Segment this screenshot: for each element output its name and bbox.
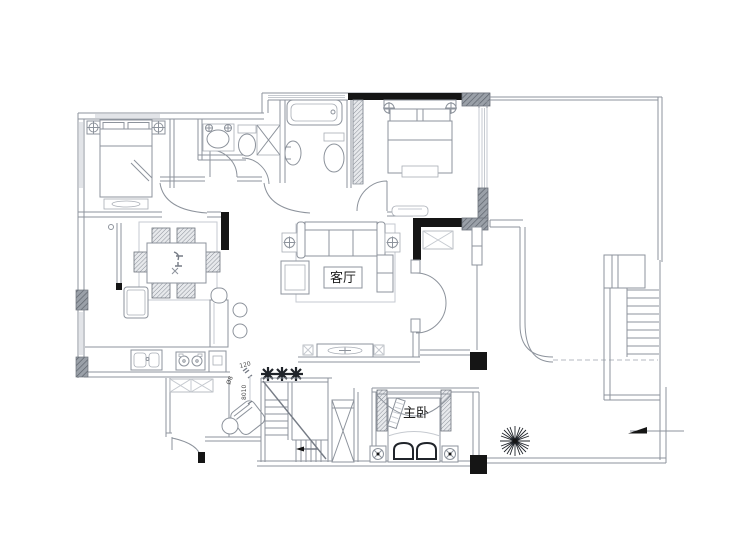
- pillow: [417, 443, 436, 459]
- stair-direction-arrow: [296, 447, 318, 452]
- column-black-1: [470, 352, 487, 370]
- outdoor-staircase: [604, 255, 660, 400]
- sink-basin: [207, 130, 229, 148]
- tv-cabinet: [317, 344, 373, 357]
- sofa-seat: [353, 230, 377, 256]
- speaker: [303, 345, 313, 355]
- dim-text: Ø8: [225, 375, 235, 386]
- bar-stool: [233, 324, 247, 338]
- kitchen-sink: [131, 350, 162, 370]
- living-room: 客厅: [281, 222, 453, 357]
- side-cabinet: [377, 255, 393, 292]
- peninsula-counter: [210, 288, 228, 347]
- sofa-seat: [305, 230, 329, 256]
- nightstand-fan: [442, 446, 458, 462]
- wall-pier: [221, 212, 229, 250]
- master-bedroom-label: 主卧: [403, 406, 429, 421]
- ac-platform: [170, 379, 213, 392]
- stove: [176, 352, 205, 370]
- powder-room: [203, 124, 280, 156]
- dim-text: 8010: [241, 385, 248, 400]
- entry-direction-arrow: [628, 427, 684, 434]
- plant-icons: [261, 367, 303, 381]
- entry-vestibule: 120 Ø8 8010: [222, 360, 303, 437]
- bed: [388, 121, 452, 173]
- sofa-arm: [377, 222, 385, 258]
- coffee-table-label: 客厅: [324, 267, 362, 288]
- bench: [402, 166, 438, 177]
- radiator-block: [76, 357, 88, 377]
- counter-appliance: [209, 351, 226, 372]
- speaker: [374, 345, 384, 355]
- sofa-seat: [329, 230, 353, 256]
- floor-plan-drawing: 客厅: [0, 0, 740, 555]
- big-plant-icon: [500, 426, 530, 456]
- dresser: [392, 206, 428, 216]
- pillow: [423, 109, 450, 121]
- column-black-2: [470, 455, 487, 474]
- pillow: [394, 443, 413, 459]
- ac-cabinet: [423, 231, 453, 249]
- fridge: [124, 287, 148, 318]
- master-bedroom: 主卧: [370, 390, 458, 462]
- dining-table: [147, 243, 206, 283]
- faucet-icon: [224, 124, 232, 132]
- corner-column: [462, 93, 490, 106]
- floor-plan: 客厅: [0, 0, 740, 555]
- shower: [257, 125, 280, 155]
- dining-chair: [206, 252, 220, 272]
- dining-chair: [177, 283, 195, 298]
- dining-chair: [177, 228, 195, 243]
- toilet: [238, 125, 256, 156]
- sofa-arm: [297, 222, 305, 258]
- pedestal-sink: [285, 141, 301, 165]
- bedroom-1: [87, 120, 165, 209]
- toilet: [324, 133, 344, 172]
- wardrobe-strip: [353, 100, 363, 184]
- bedroom-2: [383, 100, 457, 216]
- internal-staircase: [261, 378, 354, 462]
- dining-chair: [152, 228, 170, 243]
- nightstand-fan: [370, 446, 386, 462]
- sofa-back: [305, 222, 377, 230]
- stair-shaft: [332, 400, 354, 462]
- radiator-block: [76, 290, 88, 310]
- pillow: [390, 109, 417, 121]
- living-room-label: 客厅: [330, 270, 356, 286]
- dining-chair: [152, 283, 170, 298]
- dining-chair: [134, 252, 148, 272]
- top-bearing-wall: [348, 93, 472, 100]
- bed: [100, 129, 152, 197]
- round-table: [222, 418, 238, 434]
- kitchen: [85, 287, 247, 392]
- armchair: [281, 261, 309, 294]
- faucet-icon: [205, 124, 213, 132]
- bar-stool: [233, 303, 247, 317]
